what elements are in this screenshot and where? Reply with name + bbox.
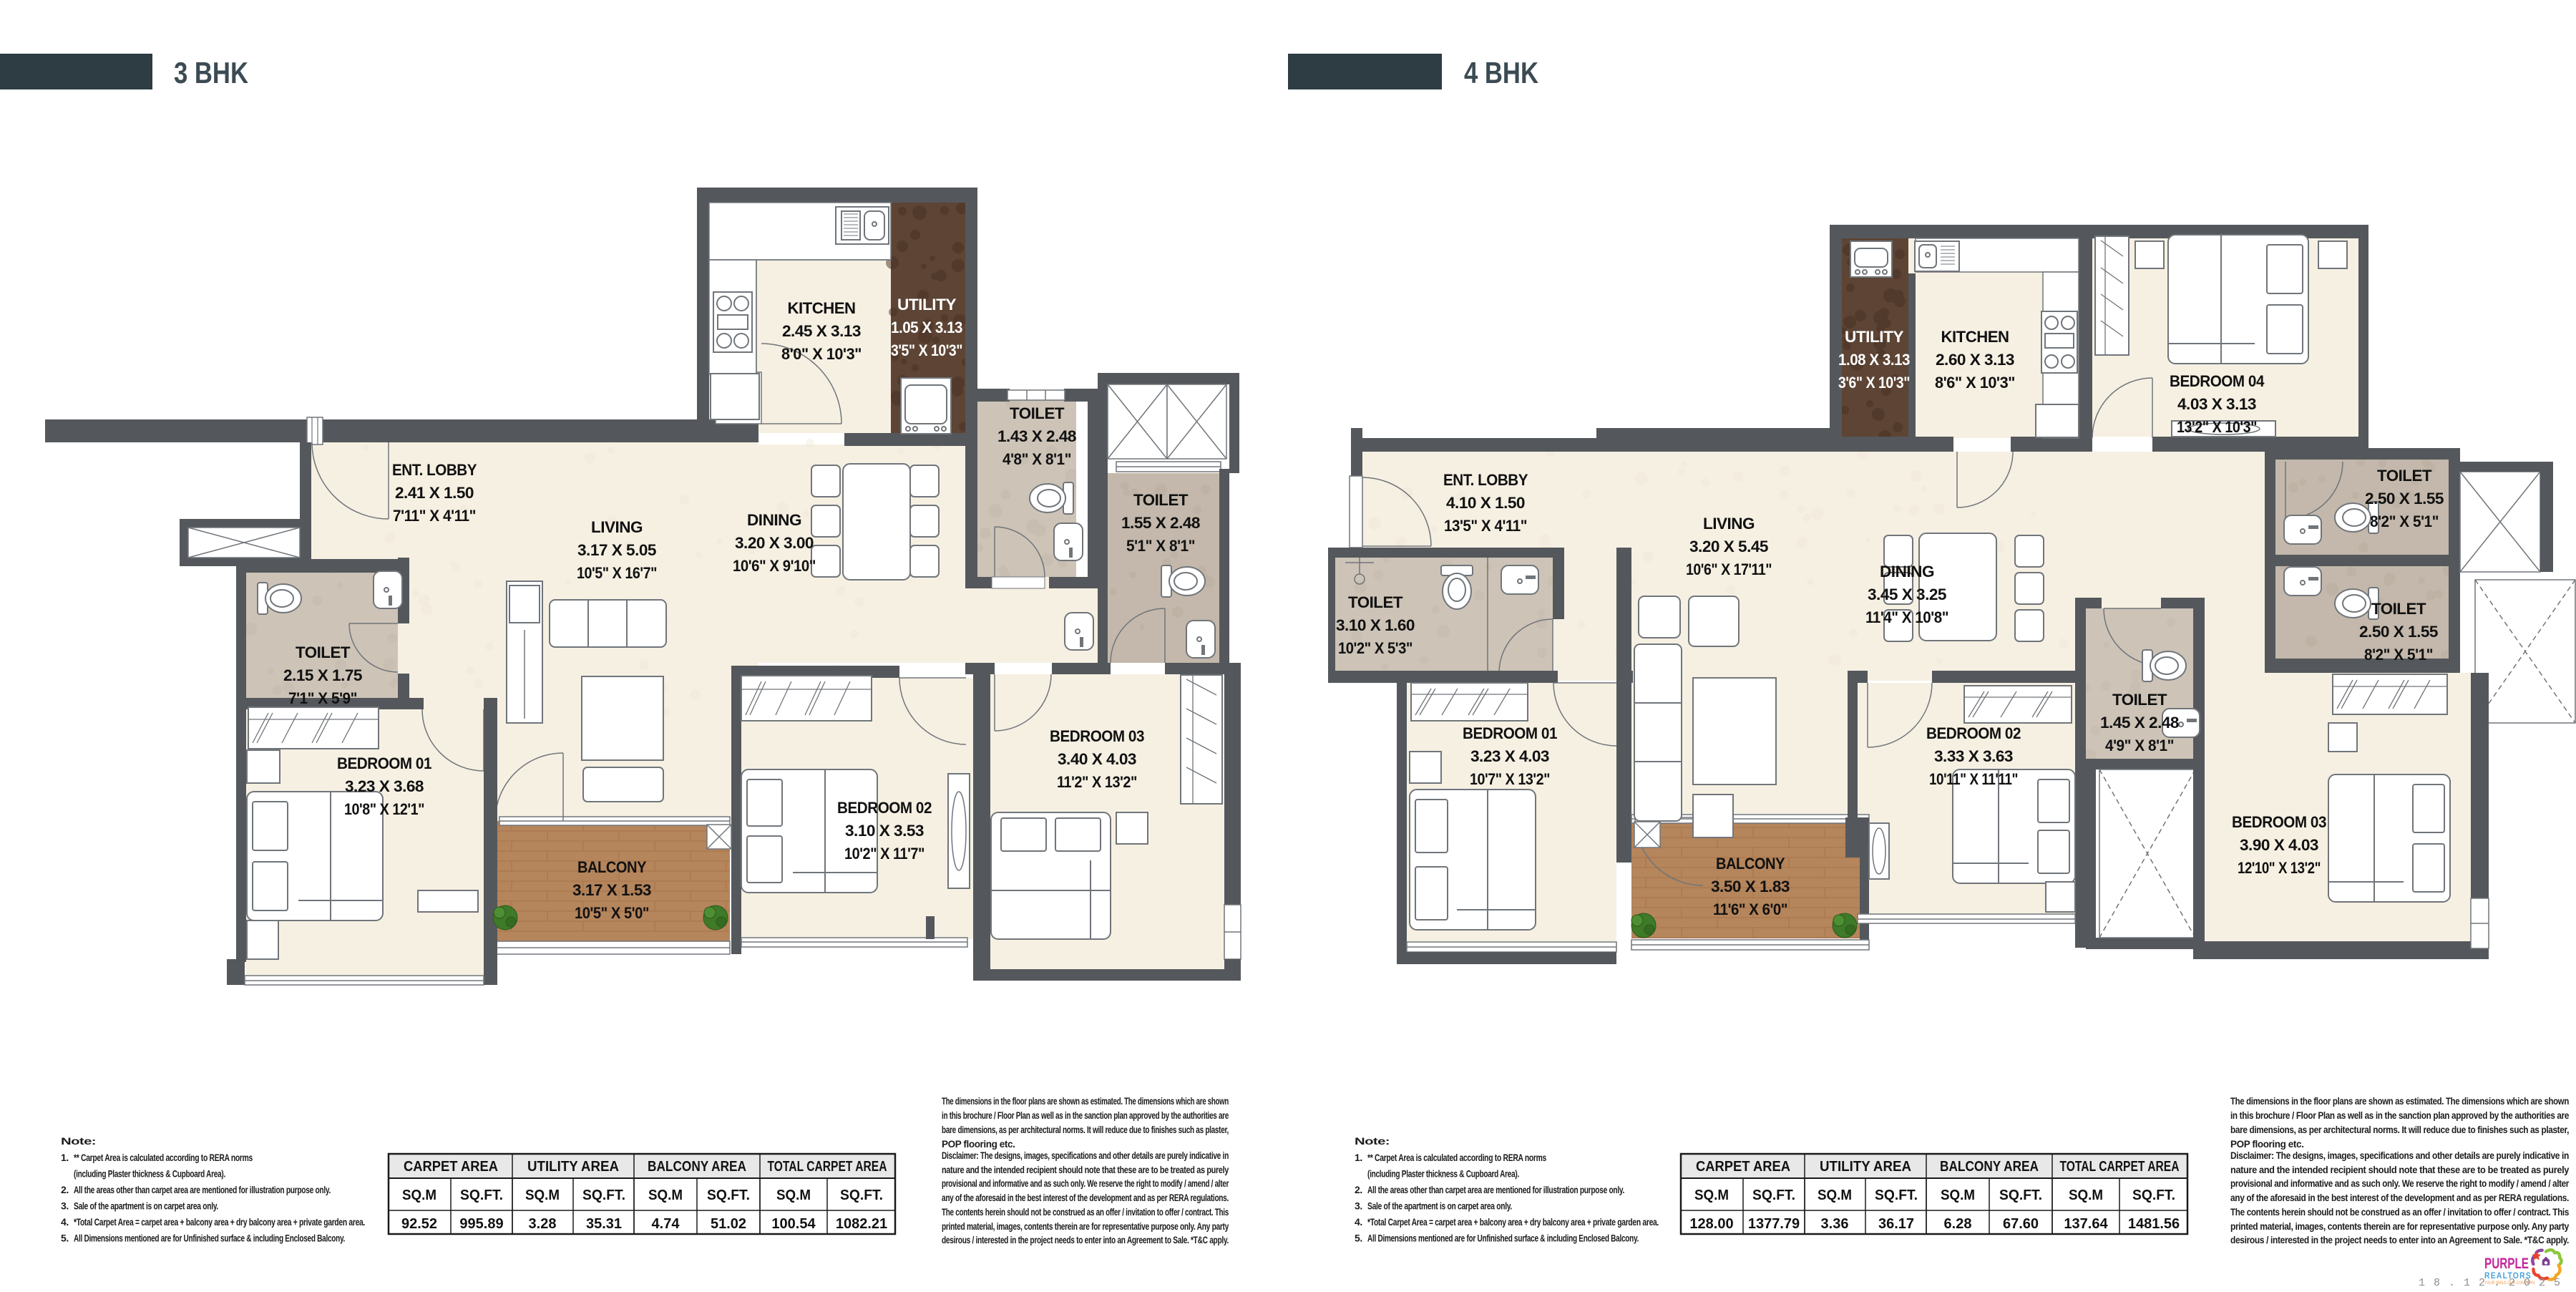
svg-text:TOILET: TOILET: [1010, 404, 1065, 422]
svg-text:in this brochure / Floor Plan: in this brochure / Floor Plan as well as…: [942, 1110, 1229, 1121]
svg-text:*Total Carpet Area = carpet ar: *Total Carpet Area = carpet area + balco…: [1367, 1216, 1659, 1228]
svg-text:UTILITY AREA: UTILITY AREA: [1820, 1159, 1911, 1175]
svg-text:4.: 4.: [61, 1216, 69, 1228]
svg-text:any of the aforesaid in the be: any of the aforesaid in the best interes…: [2230, 1193, 2569, 1203]
svg-text:Disclaimer: The designs, image: Disclaimer: The designs, images, specifi…: [942, 1150, 1229, 1161]
svg-text:DINING: DINING: [1880, 563, 1934, 581]
svg-text:BEDROOM 04: BEDROOM 04: [2170, 372, 2265, 390]
svg-text:CARPET AREA: CARPET AREA: [404, 1159, 498, 1175]
svg-text:3.17 X 1.53: 3.17 X 1.53: [572, 881, 651, 899]
svg-text:100.54: 100.54: [771, 1216, 816, 1232]
svg-text:11'6" X 6'0": 11'6" X 6'0": [1713, 900, 1787, 918]
svg-text:Sale of the apartment is on ca: Sale of the apartment is on carpet area …: [1367, 1200, 1512, 1212]
svg-text:3.33 X 3.63: 3.33 X 3.63: [1934, 747, 2013, 765]
svg-text:8'2" X 5'1": 8'2" X 5'1": [2364, 646, 2433, 664]
svg-text:TOILET: TOILET: [2371, 600, 2426, 618]
svg-text:5'1" X 8'1": 5'1" X 8'1": [1126, 537, 1195, 555]
svg-text:1.: 1.: [1355, 1152, 1362, 1163]
svg-text:Note:: Note:: [1355, 1135, 1390, 1147]
svg-text:67.60: 67.60: [2003, 1216, 2039, 1232]
svg-text:36.17: 36.17: [1878, 1216, 1914, 1232]
svg-text:SQ.FT.: SQ.FT.: [460, 1187, 503, 1203]
svg-text:in this brochure / Floor Plan: in this brochure / Floor Plan as well as…: [2230, 1110, 2570, 1121]
svg-text:18.12.2025: 18.12.2025: [2419, 1277, 2569, 1288]
svg-text:1.05 X 3.13: 1.05 X 3.13: [891, 319, 962, 336]
svg-text:All the areas other than carpe: All the areas other than carpet area are…: [74, 1184, 331, 1195]
svg-text:10'5" X 16'7": 10'5" X 16'7": [577, 564, 657, 582]
svg-text:1.: 1.: [61, 1152, 69, 1163]
svg-text:desirous / interested in the p: desirous / interested in the project nee…: [942, 1235, 1229, 1245]
svg-text:printed material, images, cont: printed material, images, contents there…: [942, 1221, 1229, 1232]
svg-text:TOILET: TOILET: [2377, 467, 2432, 485]
svg-text:4.74: 4.74: [652, 1216, 680, 1232]
svg-text:2.60 X 3.13: 2.60 X 3.13: [1936, 351, 2014, 369]
svg-text:4.03 X 3.13: 4.03 X 3.13: [2177, 395, 2256, 413]
svg-text:BALCONY AREA: BALCONY AREA: [1940, 1159, 2039, 1175]
svg-text:TOTAL CARPET AREA: TOTAL CARPET AREA: [768, 1159, 887, 1175]
svg-text:3.90 X 4.03: 3.90 X 4.03: [2240, 836, 2318, 854]
svg-text:7'1" X 5'9": 7'1" X 5'9": [288, 689, 357, 707]
svg-text:TOILET: TOILET: [296, 643, 351, 661]
svg-text:SQ.FT.: SQ.FT.: [2132, 1187, 2175, 1203]
svg-text:TOILET: TOILET: [1348, 593, 1403, 611]
svg-text:2.50 X 1.55: 2.50 X 1.55: [2365, 490, 2444, 507]
svg-text:3.28: 3.28: [529, 1216, 557, 1232]
svg-text:DINING: DINING: [747, 511, 801, 529]
svg-text:3.36: 3.36: [1821, 1216, 1849, 1232]
svg-text:3 BHK: 3 BHK: [174, 56, 248, 89]
svg-text:** Carpet Area is calculated a: ** Carpet Area is calculated according t…: [1367, 1152, 1546, 1163]
svg-text:4.: 4.: [1355, 1216, 1362, 1228]
svg-text:** Carpet Area is calculated a: ** Carpet Area is calculated according t…: [74, 1152, 253, 1163]
svg-text:(including Plaster thickness &: (including Plaster thickness & Cupboard …: [1367, 1168, 1519, 1180]
svg-text:Note:: Note:: [61, 1135, 96, 1147]
svg-text:SQ.M: SQ.M: [402, 1187, 436, 1203]
svg-text:3.10 X 1.60: 3.10 X 1.60: [1336, 616, 1415, 634]
svg-text:ENT. LOBBY: ENT. LOBBY: [392, 461, 477, 479]
svg-text:printed material, images, cont: printed material, images, contents there…: [2230, 1221, 2570, 1232]
svg-text:3.50 X 1.83: 3.50 X 1.83: [1711, 878, 1790, 895]
svg-text:2.50 X 1.55: 2.50 X 1.55: [2359, 623, 2438, 641]
svg-text:All Dimensions mentioned are f: All Dimensions mentioned are for Unfinis…: [74, 1233, 345, 1244]
svg-text:LIVING: LIVING: [591, 518, 643, 536]
svg-text:desirous / interested in the p: desirous / interested in the project nee…: [2230, 1235, 2569, 1245]
svg-text:Sale of the apartment is on ca: Sale of the apartment is on carpet area …: [74, 1200, 218, 1212]
svg-text:8'6" X 10'3": 8'6" X 10'3": [1935, 374, 2015, 392]
svg-text:92.52: 92.52: [401, 1216, 437, 1232]
svg-text:BALCONY AREA: BALCONY AREA: [648, 1159, 746, 1175]
svg-text:3.20 X 5.45: 3.20 X 5.45: [1689, 538, 1768, 555]
svg-text:SQ.FT.: SQ.FT.: [840, 1187, 883, 1203]
svg-text:bare dimensions, as per archit: bare dimensions, as per architectural no…: [942, 1125, 1229, 1135]
svg-text:2.45 X 3.13: 2.45 X 3.13: [782, 322, 861, 340]
svg-text:The dimensions in the floor pl: The dimensions in the floor plans are sh…: [942, 1096, 1229, 1107]
svg-text:3.40 X 4.03: 3.40 X 4.03: [1058, 750, 1136, 768]
svg-text:1377.79: 1377.79: [1748, 1216, 1800, 1232]
svg-text:BEDROOM 01: BEDROOM 01: [337, 754, 431, 772]
svg-text:POP flooring etc.: POP flooring etc.: [2230, 1139, 2303, 1150]
svg-text:6.28: 6.28: [1944, 1216, 1972, 1232]
svg-text:5.: 5.: [61, 1233, 69, 1244]
svg-text:10'8" X 12'1": 10'8" X 12'1": [344, 800, 424, 818]
svg-text:7'11" X 4'11": 7'11" X 4'11": [393, 507, 476, 525]
svg-text:BEDROOM 02: BEDROOM 02: [837, 799, 932, 817]
svg-text:995.89: 995.89: [459, 1216, 503, 1232]
svg-text:All the areas other than carpe: All the areas other than carpet area are…: [1367, 1184, 1624, 1195]
svg-text:SQ.M: SQ.M: [2069, 1187, 2103, 1203]
svg-text:3'6" X 10'3": 3'6" X 10'3": [1838, 374, 1910, 392]
svg-text:BEDROOM 03: BEDROOM 03: [2232, 813, 2326, 831]
svg-text:51.02: 51.02: [711, 1216, 746, 1232]
svg-text:10'5" X 5'0": 10'5" X 5'0": [575, 904, 649, 922]
svg-text:The dimensions in the floor pl: The dimensions in the floor plans are sh…: [2230, 1096, 2569, 1107]
svg-text:nature and the intended recipi: nature and the intended recipient should…: [942, 1165, 1229, 1175]
svg-text:UTILITY: UTILITY: [897, 296, 957, 314]
svg-text:5.: 5.: [1355, 1233, 1362, 1244]
svg-text:(including Plaster thickness &: (including Plaster thickness & Cupboard …: [74, 1168, 225, 1180]
svg-text:1481.56: 1481.56: [2128, 1216, 2180, 1232]
svg-text:SQ.M: SQ.M: [1941, 1187, 1975, 1203]
svg-text:SQ.FT.: SQ.FT.: [1999, 1187, 2042, 1203]
svg-text:provisional and informative an: provisional and informative and as such …: [2230, 1178, 2570, 1189]
svg-text:BALCONY: BALCONY: [1716, 855, 1785, 873]
svg-text:TOILET: TOILET: [1133, 491, 1189, 509]
svg-text:137.64: 137.64: [2064, 1216, 2108, 1232]
svg-text:3.23 X 3.68: 3.23 X 3.68: [345, 777, 424, 795]
svg-text:SQ.FT.: SQ.FT.: [582, 1187, 625, 1203]
svg-text:10'6" X 17'11": 10'6" X 17'11": [1686, 560, 1772, 578]
svg-text:2.: 2.: [61, 1184, 69, 1195]
svg-text:10'7" X 13'2": 10'7" X 13'2": [1470, 770, 1550, 788]
svg-text:KITCHEN: KITCHEN: [1941, 328, 2009, 346]
svg-text:3.: 3.: [1355, 1200, 1362, 1212]
svg-text:BALCONY: BALCONY: [577, 858, 647, 876]
svg-text:1082.21: 1082.21: [836, 1216, 887, 1232]
svg-text:PURPLE: PURPLE: [2484, 1255, 2529, 1272]
svg-text:SQ.M: SQ.M: [1694, 1187, 1729, 1203]
svg-text:10'2" X 11'7": 10'2" X 11'7": [844, 845, 924, 863]
svg-text:ENT. LOBBY: ENT. LOBBY: [1443, 471, 1528, 489]
svg-text:LIVING: LIVING: [1703, 515, 1755, 533]
svg-text:3.20 X 3.00: 3.20 X 3.00: [735, 534, 814, 552]
svg-text:13'5" X 4'11": 13'5" X 4'11": [1444, 517, 1527, 535]
svg-text:provisional and informative an: provisional and informative and as such …: [942, 1178, 1229, 1189]
svg-text:BEDROOM 01: BEDROOM 01: [1463, 724, 1557, 742]
svg-text:10'2" X 5'3": 10'2" X 5'3": [1338, 639, 1413, 657]
svg-text:nature and the intended recipi: nature and the intended recipient should…: [2230, 1165, 2570, 1175]
svg-text:10'11" X 11'11": 10'11" X 11'11": [1929, 770, 2018, 788]
svg-text:UTILITY: UTILITY: [1845, 328, 1904, 346]
svg-text:The contents herein should not: The contents herein should not be constr…: [2230, 1207, 2569, 1218]
svg-text:10'6" X 9'10": 10'6" X 9'10": [733, 557, 816, 575]
svg-text:1.55 X 2.48: 1.55 X 2.48: [1121, 514, 1200, 532]
svg-text:The contents herein should not: The contents herein should not be constr…: [942, 1207, 1229, 1218]
svg-text:BEDROOM 03: BEDROOM 03: [1050, 727, 1144, 745]
svg-text:12'10" X 13'2": 12'10" X 13'2": [2238, 859, 2321, 877]
svg-text:SQ.M: SQ.M: [525, 1187, 560, 1203]
svg-text:8'2" X 5'1": 8'2" X 5'1": [2370, 513, 2439, 530]
svg-text:SQ.M: SQ.M: [776, 1187, 811, 1203]
svg-text:4'9" X 8'1": 4'9" X 8'1": [2105, 737, 2174, 754]
svg-text:SQ.M: SQ.M: [1818, 1187, 1852, 1203]
svg-text:SQ.FT.: SQ.FT.: [707, 1187, 750, 1203]
svg-text:*Total Carpet Area = carpet ar: *Total Carpet Area = carpet area + balco…: [74, 1216, 365, 1228]
svg-text:KITCHEN: KITCHEN: [788, 299, 856, 317]
svg-text:3.10 X 3.53: 3.10 X 3.53: [845, 822, 924, 840]
svg-text:2.41 X 1.50: 2.41 X 1.50: [395, 484, 474, 502]
svg-text:3.17 X 5.05: 3.17 X 5.05: [577, 541, 656, 559]
svg-text:bare dimensions, as per archit: bare dimensions, as per architectural no…: [2230, 1125, 2569, 1135]
svg-text:3.45 X 3.25: 3.45 X 3.25: [1868, 586, 1946, 603]
svg-text:11'4" X 10'8": 11'4" X 10'8": [1865, 608, 1948, 626]
svg-text:All Dimensions mentioned are f: All Dimensions mentioned are for Unfinis…: [1367, 1233, 1639, 1244]
svg-text:2.15 X 1.75: 2.15 X 1.75: [283, 666, 362, 684]
svg-text:POP flooring etc.: POP flooring etc.: [942, 1139, 1015, 1150]
svg-text:2.: 2.: [1355, 1184, 1362, 1195]
svg-text:128.00: 128.00: [1689, 1216, 1733, 1232]
svg-text:TOTAL CARPET AREA: TOTAL CARPET AREA: [2060, 1159, 2180, 1175]
svg-text:SQ.FT.: SQ.FT.: [1752, 1187, 1795, 1203]
svg-text:4'8" X 8'1": 4'8" X 8'1": [1002, 450, 1071, 468]
svg-text:any of the aforesaid in the be: any of the aforesaid in the best interes…: [942, 1193, 1229, 1203]
svg-text:4 BHK: 4 BHK: [1464, 56, 1538, 89]
svg-text:11'2" X 13'2": 11'2" X 13'2": [1057, 773, 1137, 791]
svg-text:3'5" X 10'3": 3'5" X 10'3": [891, 341, 962, 359]
svg-text:4.10 X 1.50: 4.10 X 1.50: [1446, 494, 1525, 512]
svg-text:8'0" X 10'3": 8'0" X 10'3": [781, 345, 862, 363]
svg-text:CARPET AREA: CARPET AREA: [1696, 1159, 1790, 1175]
svg-text:SQ.FT.: SQ.FT.: [1875, 1187, 1918, 1203]
svg-text:TOILET: TOILET: [2112, 691, 2167, 709]
svg-text:BEDROOM 02: BEDROOM 02: [1926, 724, 2021, 742]
svg-text:3.: 3.: [61, 1200, 69, 1212]
svg-text:Disclaimer: The designs, image: Disclaimer: The designs, images, specifi…: [2230, 1150, 2569, 1161]
svg-text:35.31: 35.31: [586, 1216, 622, 1232]
svg-text:13'2" X 10'3": 13'2" X 10'3": [2177, 418, 2257, 436]
svg-text:1.45 X 2.48: 1.45 X 2.48: [2100, 714, 2179, 732]
svg-text:1.43 X 2.48: 1.43 X 2.48: [997, 427, 1076, 445]
svg-text:SQ.M: SQ.M: [648, 1187, 683, 1203]
svg-text:3.23 X 4.03: 3.23 X 4.03: [1470, 747, 1549, 765]
svg-text:1.08 X 3.13: 1.08 X 3.13: [1838, 351, 1910, 369]
svg-text:UTILITY AREA: UTILITY AREA: [527, 1159, 619, 1175]
